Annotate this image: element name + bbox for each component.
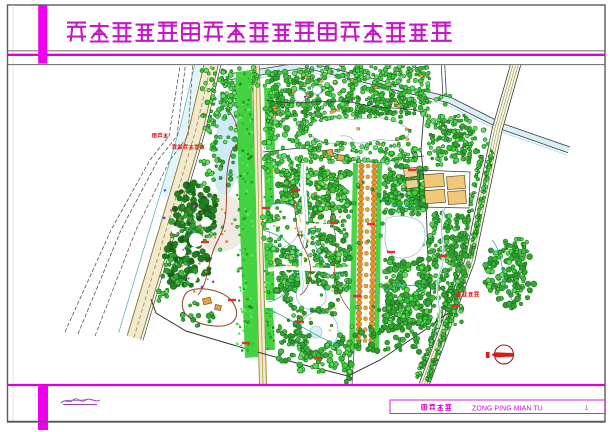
- svg-text:1: 1: [585, 406, 589, 412]
- svg-text:ZONG PING MIAN TU: ZONG PING MIAN TU: [472, 406, 543, 413]
